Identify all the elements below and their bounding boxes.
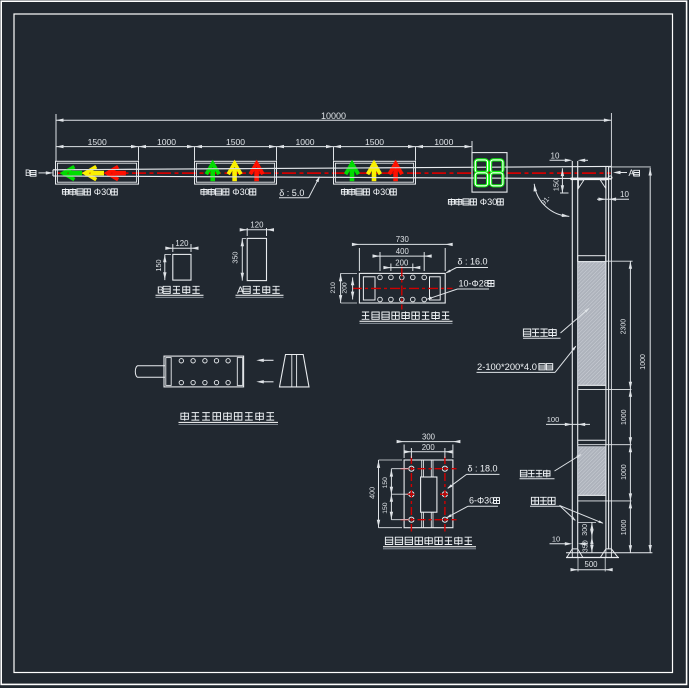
svg-text:350: 350	[231, 252, 240, 264]
svg-text:1000: 1000	[621, 464, 628, 480]
svg-text:1000: 1000	[621, 520, 628, 536]
svg-text:730: 730	[396, 235, 410, 244]
svg-text:1500: 1500	[365, 137, 384, 147]
svg-text:Φ30: Φ30	[230, 187, 250, 197]
svg-text:500: 500	[584, 560, 598, 569]
svg-text:200: 200	[395, 258, 409, 267]
svg-text:350: 350	[580, 540, 589, 552]
svg-text:δ : 5.0: δ : 5.0	[279, 188, 304, 198]
svg-text:200: 200	[342, 282, 349, 294]
svg-text:300: 300	[422, 432, 436, 441]
svg-text:1000: 1000	[640, 354, 647, 370]
svg-text:150: 150	[382, 477, 389, 489]
svg-text:150: 150	[552, 179, 561, 192]
svg-text:Φ30: Φ30	[477, 197, 497, 207]
svg-text:210: 210	[330, 282, 337, 294]
svg-text:1000: 1000	[157, 137, 176, 147]
svg-text:120: 120	[175, 239, 189, 248]
svg-text:1000: 1000	[295, 137, 314, 147]
svg-text:1000: 1000	[621, 409, 628, 425]
svg-text:δ : 16.0: δ : 16.0	[458, 257, 488, 267]
svg-text:120: 120	[250, 221, 264, 230]
svg-text:400: 400	[367, 487, 376, 499]
svg-text:6-Φ30: 6-Φ30	[469, 495, 494, 505]
svg-text:300: 300	[580, 524, 589, 536]
svg-text:10: 10	[551, 151, 560, 160]
svg-text:1000: 1000	[434, 137, 453, 147]
svg-text:δ : 18.0: δ : 18.0	[468, 464, 498, 474]
svg-text:2300: 2300	[621, 319, 628, 335]
svg-text:100: 100	[547, 415, 560, 424]
svg-text:2-100*200*4.0: 2-100*200*4.0	[477, 361, 537, 372]
svg-text:1500: 1500	[226, 137, 245, 147]
svg-text:Φ30: Φ30	[370, 187, 390, 197]
svg-text:10000: 10000	[321, 111, 346, 121]
svg-text:1500: 1500	[88, 137, 107, 147]
svg-text:10-Φ28: 10-Φ28	[459, 278, 489, 288]
svg-text:150: 150	[154, 260, 163, 272]
svg-text:400: 400	[396, 247, 410, 256]
svg-text:10: 10	[552, 535, 560, 544]
svg-text:200: 200	[422, 443, 436, 452]
svg-text:Φ30: Φ30	[91, 187, 111, 197]
svg-text:10: 10	[620, 190, 629, 199]
svg-text:150: 150	[382, 502, 389, 514]
